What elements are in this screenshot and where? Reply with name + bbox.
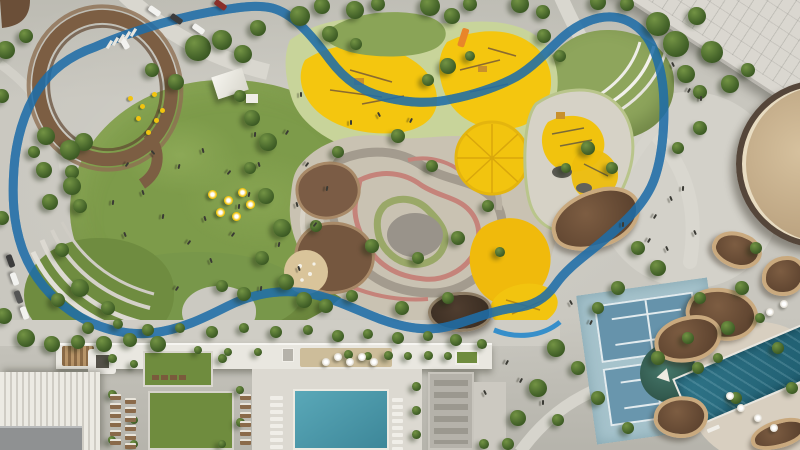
- tree: [216, 280, 228, 292]
- pool-lounger: [392, 440, 403, 444]
- deck-umbrella: [370, 358, 378, 366]
- lawn-umbrella: [224, 196, 233, 205]
- deck-umbrella: [770, 424, 778, 432]
- tree: [51, 293, 65, 307]
- pool-lounger: [392, 412, 403, 416]
- pool-lounger: [270, 403, 283, 407]
- tree: [363, 329, 373, 339]
- tree: [142, 324, 154, 336]
- tree: [346, 1, 364, 19]
- tree: [319, 299, 333, 313]
- tree: [278, 274, 294, 290]
- tree: [384, 351, 393, 360]
- deck-umbrella: [766, 308, 774, 316]
- tree: [465, 51, 475, 61]
- tree: [581, 141, 595, 155]
- lawn-kiosk: [246, 94, 258, 103]
- market-stall: [110, 439, 121, 445]
- tree: [552, 414, 564, 426]
- tree: [296, 292, 312, 308]
- tree: [17, 329, 35, 347]
- tree: [688, 7, 706, 25]
- market-stall: [240, 394, 251, 400]
- deck-umbrella: [737, 404, 745, 412]
- tree: [273, 219, 291, 237]
- tree: [244, 110, 260, 126]
- pool-lounger: [270, 438, 283, 442]
- tree: [108, 354, 117, 363]
- tree: [36, 162, 52, 178]
- market-stall: [240, 430, 251, 436]
- tree: [404, 352, 412, 360]
- tree: [444, 352, 452, 360]
- picnic-umbrella: [154, 118, 159, 123]
- tree: [529, 379, 547, 397]
- pool-lounger: [270, 417, 283, 421]
- tree: [451, 231, 465, 245]
- pool-lounger: [392, 426, 403, 430]
- tree: [63, 177, 81, 195]
- pool-lounger: [270, 424, 283, 428]
- tree: [73, 199, 87, 213]
- tree: [482, 200, 494, 212]
- bench: [179, 375, 186, 380]
- deck-umbrella: [322, 358, 330, 366]
- tree: [28, 146, 40, 158]
- picnic-umbrella: [152, 92, 157, 97]
- tree: [713, 353, 723, 363]
- tree: [412, 430, 421, 439]
- market-stall: [110, 430, 121, 436]
- market-stall: [125, 434, 136, 440]
- tree: [391, 129, 405, 143]
- tree: [663, 31, 689, 57]
- tree: [561, 163, 571, 173]
- tree: [168, 74, 184, 90]
- tree: [755, 313, 765, 323]
- deck-umbrella: [358, 353, 366, 361]
- tree: [591, 391, 605, 405]
- picnic-umbrella: [128, 96, 133, 101]
- market-stall: [110, 412, 121, 418]
- tree: [55, 243, 69, 257]
- tree: [554, 50, 566, 62]
- tree: [772, 342, 784, 354]
- lawn-umbrella: [246, 200, 255, 209]
- tree: [677, 65, 695, 83]
- tree: [150, 336, 166, 352]
- tree: [741, 63, 755, 77]
- tree: [113, 319, 123, 329]
- tree: [37, 127, 55, 145]
- tree: [218, 440, 226, 448]
- tree: [786, 382, 798, 394]
- tree: [692, 362, 704, 374]
- tree: [646, 12, 670, 36]
- market-stall: [125, 407, 136, 413]
- bench: [161, 375, 168, 380]
- tree: [322, 26, 338, 42]
- tree: [212, 30, 232, 50]
- tree: [721, 321, 735, 335]
- pool-lounger: [392, 433, 403, 437]
- tree: [19, 29, 33, 43]
- tree: [444, 8, 460, 24]
- tree: [218, 354, 227, 363]
- pool-lounger: [392, 405, 403, 409]
- tree: [672, 142, 684, 154]
- bench: [170, 375, 177, 380]
- market-stall: [240, 421, 251, 427]
- tree: [206, 326, 218, 338]
- tree: [96, 336, 112, 352]
- tree: [82, 322, 94, 334]
- tree: [694, 292, 706, 304]
- tree: [42, 194, 58, 210]
- tree: [259, 133, 277, 151]
- tree: [101, 301, 115, 315]
- bench: [152, 375, 159, 380]
- tree: [332, 146, 344, 158]
- person: [622, 222, 624, 227]
- tree: [175, 323, 185, 333]
- tree: [236, 386, 244, 394]
- tree: [392, 332, 404, 344]
- market-stall: [125, 416, 136, 422]
- tree: [303, 325, 313, 335]
- market-stall: [110, 403, 121, 409]
- tree: [44, 336, 60, 352]
- tree: [735, 281, 749, 295]
- tree: [270, 326, 282, 338]
- tree: [412, 406, 421, 415]
- person: [254, 132, 256, 137]
- tree: [254, 348, 262, 356]
- deck-umbrella: [780, 300, 788, 308]
- tree: [423, 331, 433, 341]
- tree: [502, 438, 514, 450]
- deck-umbrella: [754, 414, 762, 422]
- tree: [547, 339, 565, 357]
- picnic-umbrella: [146, 130, 151, 135]
- park-aerial-render: [0, 0, 800, 450]
- pool-lounger: [270, 431, 283, 435]
- tree: [479, 439, 489, 449]
- tree: [750, 242, 762, 254]
- tree: [682, 332, 694, 344]
- tree: [495, 247, 505, 257]
- tree: [651, 351, 665, 365]
- tree: [71, 335, 85, 349]
- picnic-umbrella: [160, 108, 165, 113]
- tree: [290, 6, 310, 26]
- tree: [365, 239, 379, 253]
- tree: [424, 351, 433, 360]
- tree: [571, 361, 585, 375]
- tree: [426, 160, 438, 172]
- tree: [440, 58, 456, 74]
- tree: [239, 323, 249, 333]
- tree: [234, 45, 252, 63]
- tree: [234, 90, 246, 102]
- person: [300, 92, 302, 97]
- tree: [631, 241, 645, 255]
- person: [350, 120, 352, 125]
- market-stall: [240, 412, 251, 418]
- tree: [721, 75, 739, 93]
- lawn-umbrella: [238, 188, 247, 197]
- tree: [237, 287, 251, 301]
- lawn-umbrella: [208, 190, 217, 199]
- lawn-umbrella: [232, 212, 241, 221]
- person: [542, 400, 544, 405]
- tree: [332, 330, 344, 342]
- tree: [592, 302, 604, 314]
- market-stall: [110, 421, 121, 427]
- tree: [250, 20, 266, 36]
- tree: [258, 188, 274, 204]
- picnic-umbrella: [140, 104, 145, 109]
- pool-lounger: [270, 445, 283, 449]
- tree: [442, 292, 454, 304]
- tree: [412, 252, 424, 264]
- market-stall: [110, 394, 121, 400]
- tree: [701, 41, 723, 63]
- tree: [450, 334, 462, 346]
- tree: [650, 260, 666, 276]
- tree: [185, 35, 211, 61]
- tree: [346, 290, 358, 302]
- track-spur: [494, 322, 560, 335]
- market-stall: [125, 398, 136, 404]
- tree: [622, 422, 634, 434]
- pool-lounger: [270, 410, 283, 414]
- tree: [350, 38, 362, 50]
- tree: [194, 346, 202, 354]
- deck-umbrella: [334, 353, 342, 361]
- tree: [606, 162, 618, 174]
- pool-lounger: [270, 396, 283, 400]
- tree: [71, 279, 89, 297]
- tree: [693, 121, 707, 135]
- tree: [537, 29, 551, 43]
- tree: [145, 63, 159, 77]
- tree: [255, 251, 269, 265]
- person: [700, 96, 702, 101]
- person: [682, 186, 684, 191]
- market-stall: [125, 425, 136, 431]
- tree: [123, 333, 137, 347]
- picnic-umbrella: [136, 116, 141, 121]
- market-stall: [240, 439, 251, 445]
- tree: [510, 410, 526, 426]
- tree: [422, 74, 434, 86]
- tree: [477, 339, 487, 349]
- market-stall: [240, 403, 251, 409]
- tree: [536, 5, 550, 19]
- tree: [130, 360, 138, 368]
- tree: [412, 382, 421, 391]
- lawn-umbrella: [216, 208, 225, 217]
- market-stall: [125, 443, 136, 449]
- tree: [395, 301, 409, 315]
- pool-lounger: [392, 419, 403, 423]
- tree: [611, 281, 625, 295]
- pool-lounger: [392, 398, 403, 402]
- deck-umbrella: [346, 358, 354, 366]
- deck-umbrella: [726, 392, 734, 400]
- tree: [60, 140, 80, 160]
- tree: [244, 162, 256, 174]
